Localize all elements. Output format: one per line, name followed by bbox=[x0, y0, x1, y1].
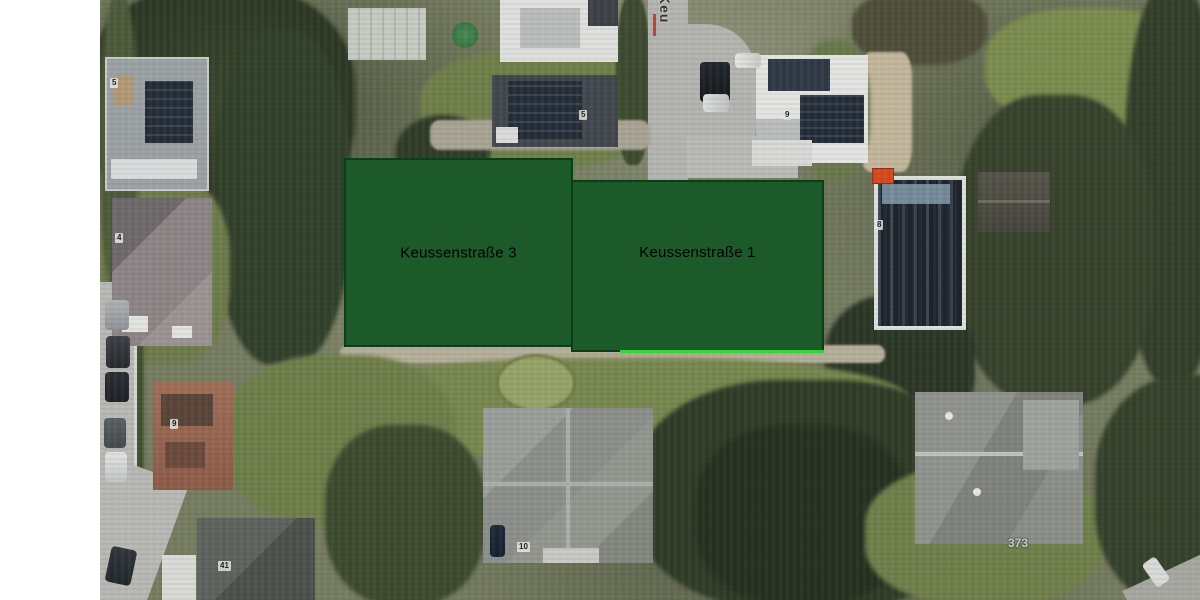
parked-car bbox=[104, 418, 126, 448]
parcel-overlay-keussenstrasse-3[interactable]: Keussenstraße 3 bbox=[344, 158, 573, 347]
building-flat-roof-top-left bbox=[105, 57, 209, 191]
solar-panel-array bbox=[800, 95, 864, 143]
solar-panel-array bbox=[508, 81, 582, 139]
garden-bed-ellipse bbox=[496, 354, 576, 412]
house-number-label: 5 bbox=[110, 78, 118, 88]
trees-bottom-left bbox=[325, 425, 485, 600]
dark-roof-section bbox=[161, 394, 213, 426]
garage-bottom-left bbox=[162, 555, 196, 600]
white-annex bbox=[496, 127, 518, 143]
house-number-label: 9 bbox=[783, 110, 791, 120]
building-solar-roof-center bbox=[492, 75, 618, 147]
red-road-marking bbox=[653, 14, 656, 36]
building-red-roof-left bbox=[153, 382, 233, 490]
bright-green-boundary-line bbox=[620, 350, 824, 353]
house-number-label: 8 bbox=[875, 220, 883, 230]
aerial-photo-canvas[interactable]: Keu 5 4 5 9 8 9 10 41 373 Keussenstraße … bbox=[100, 0, 1200, 600]
street-name-label: Keu bbox=[657, 0, 673, 23]
skylight-strip bbox=[882, 184, 950, 204]
parcel-label: Keussenstraße 1 bbox=[573, 244, 822, 261]
roof-wing bbox=[1023, 400, 1079, 470]
roof-ridge bbox=[483, 482, 653, 486]
gray-terrace bbox=[520, 8, 580, 48]
parked-car bbox=[105, 300, 129, 330]
building-white-top-center bbox=[500, 0, 618, 62]
house-number-label: 4 bbox=[115, 233, 123, 243]
parcel-overlay-keussenstrasse-1[interactable]: Keussenstraße 1 bbox=[571, 180, 824, 352]
roof-ridge bbox=[978, 200, 1050, 203]
parcel-number-label: 373 bbox=[1008, 536, 1028, 550]
house-number-label: 41 bbox=[218, 561, 231, 571]
woods-right-mid bbox=[955, 95, 1155, 405]
parked-car bbox=[703, 94, 729, 112]
building-dark-roof-bottom-left bbox=[197, 518, 315, 600]
dark-roof-section bbox=[588, 0, 618, 26]
mansion-bottom-center bbox=[483, 408, 653, 563]
garage-right bbox=[752, 140, 812, 166]
parked-car bbox=[105, 372, 129, 402]
trees-left-column bbox=[215, 30, 350, 365]
roof-terrace bbox=[111, 159, 197, 179]
map-screenshot: Keu 5 4 5 9 8 9 10 41 373 Keussenstraße … bbox=[0, 0, 1200, 600]
parked-car bbox=[105, 452, 127, 482]
roof-window bbox=[945, 412, 953, 420]
parked-car bbox=[735, 53, 761, 68]
roof-window bbox=[973, 488, 981, 496]
roof-terrace bbox=[543, 548, 599, 563]
round-water-tank bbox=[452, 22, 478, 48]
solar-panel-array bbox=[145, 81, 193, 143]
dormer bbox=[172, 326, 192, 338]
dark-roof-section bbox=[768, 59, 830, 91]
parked-car bbox=[490, 525, 505, 557]
white-left-margin bbox=[0, 0, 100, 600]
orange-dumpster bbox=[872, 168, 894, 184]
dark-roof-section bbox=[165, 442, 205, 468]
parked-car bbox=[106, 336, 130, 368]
building-paneled-roof-right bbox=[874, 176, 966, 330]
building-dark-roof-far-right bbox=[978, 172, 1050, 232]
building-complex-bottom-right bbox=[915, 392, 1083, 544]
greenhouse bbox=[348, 8, 426, 60]
house-number-label: 10 bbox=[517, 542, 530, 552]
house-number-label: 9 bbox=[170, 419, 178, 429]
house-number-label: 5 bbox=[579, 110, 587, 120]
parcel-label: Keussenstraße 3 bbox=[346, 244, 571, 261]
